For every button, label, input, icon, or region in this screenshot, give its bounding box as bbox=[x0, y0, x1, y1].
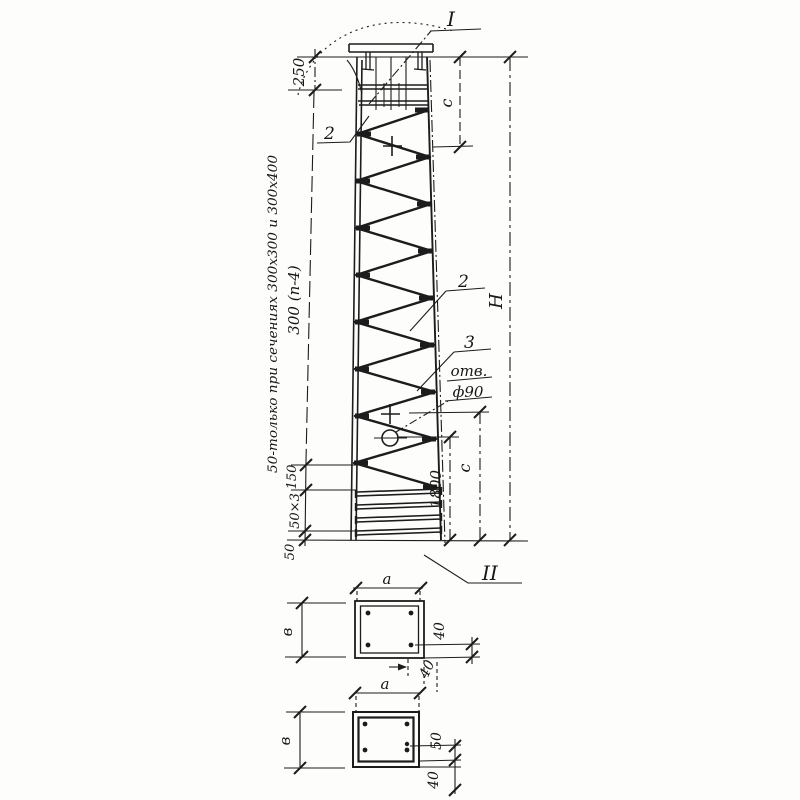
center-cross-upper bbox=[383, 136, 402, 156]
sec1-cover-side: 40 bbox=[432, 622, 448, 641]
callout-bar-top: 2 bbox=[323, 124, 335, 144]
sec2-gap-50: 50 bbox=[429, 732, 445, 750]
dim-c-upper: c bbox=[437, 98, 456, 107]
dim-1800: 1800 bbox=[427, 469, 445, 508]
dimension-lines bbox=[300, 49, 510, 794]
dimension-ticks bbox=[294, 51, 516, 796]
dim-c-lower: c bbox=[455, 463, 474, 472]
hole-phi90 bbox=[374, 430, 407, 446]
hole-label-word: отв. bbox=[451, 362, 488, 380]
section-mark-ii: II bbox=[481, 561, 499, 585]
sec1-cover-bottom: 40 bbox=[416, 658, 438, 682]
technical-drawing-sheet: I II 2 2 3 отв. ф90 250 c H 1800 c 150 5… bbox=[0, 0, 800, 800]
dim-arrowhead bbox=[398, 664, 407, 671]
dim-50-bottom: 50 bbox=[283, 544, 298, 561]
column-reinforcement-drawing: I II 2 2 3 отв. ф90 250 c H 1800 c 150 5… bbox=[0, 0, 800, 800]
note-only-50: 50-только при сечениях 300х300 и 300х400 bbox=[266, 155, 281, 473]
cross-section-upper bbox=[355, 601, 424, 658]
section-mark-i: I bbox=[446, 7, 456, 31]
cross-section-lower bbox=[353, 712, 419, 767]
dim-150: 150 bbox=[285, 465, 300, 490]
hole-leader-line bbox=[396, 401, 448, 432]
section-i-underline bbox=[430, 29, 481, 31]
dim-250: 250 bbox=[290, 57, 308, 87]
dim-h: H bbox=[486, 293, 507, 310]
sec1-dim-b: в bbox=[278, 627, 296, 636]
sec1-dim-a: a bbox=[383, 570, 392, 588]
sec2-dim-b: в bbox=[276, 736, 294, 745]
dim-50x3: 50×3 bbox=[288, 493, 303, 529]
tie-bend-nubs bbox=[354, 110, 437, 487]
note-pitch-300: 300 (п-4) bbox=[285, 265, 303, 335]
callout-bar-right: 2 bbox=[457, 272, 469, 292]
sec2-dim-a: a bbox=[381, 675, 390, 693]
hole-label-dia: ф90 bbox=[453, 383, 484, 401]
callout-tie-right: 3 bbox=[464, 333, 475, 353]
sec2-cover-40: 40 bbox=[426, 771, 442, 790]
